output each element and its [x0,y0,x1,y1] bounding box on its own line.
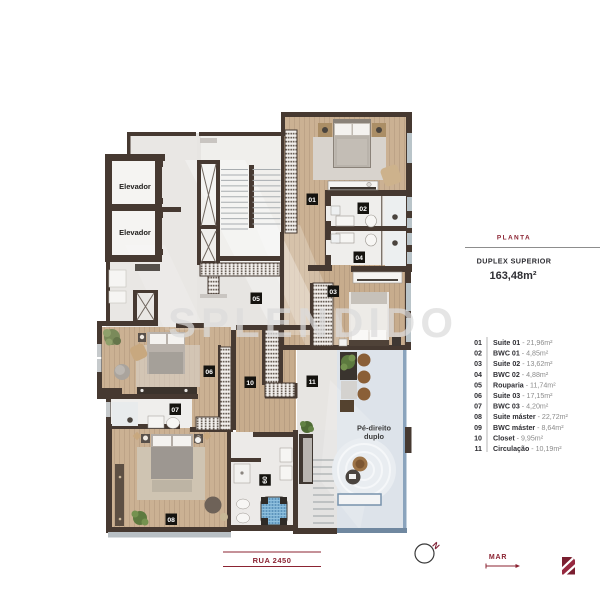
svg-text:N: N [430,540,441,551]
svg-text:BWC 03 - 4,20m²: BWC 03 - 4,20m² [493,403,549,411]
svg-text:08: 08 [474,413,482,421]
svg-text:BWC máster - 8,64m²: BWC máster - 8,64m² [493,424,564,432]
svg-text:Suite máster - 22,72m²: Suite máster - 22,72m² [493,413,569,421]
svg-text:03: 03 [474,360,482,368]
svg-text:06: 06 [474,392,482,400]
svg-text:BWC 02 - 4,88m²: BWC 02 - 4,88m² [493,371,549,379]
svg-text:01: 01 [474,339,482,347]
svg-text:08: 08 [167,517,175,524]
svg-text:Elevador: Elevador [119,182,151,191]
svg-text:Elevador: Elevador [119,228,151,237]
svg-text:PLANTA: PLANTA [497,235,531,242]
svg-text:01: 01 [308,197,316,204]
svg-text:06: 06 [205,369,213,376]
svg-text:05: 05 [474,381,482,389]
svg-text:BWC 01 - 4,85m²: BWC 01 - 4,85m² [493,350,549,358]
svg-text:Circulação - 10,19m²: Circulação - 10,19m² [493,445,562,453]
svg-text:DUPLEX SUPERIOR: DUPLEX SUPERIOR [477,257,552,266]
svg-text:Suite 02 - 13,62m²: Suite 02 - 13,62m² [493,360,553,368]
svg-text:Rouparia - 11,74m²: Rouparia - 11,74m² [493,381,556,389]
svg-text:09: 09 [474,424,482,432]
svg-text:07: 07 [474,403,482,411]
svg-text:SPLENDIDO: SPLENDIDO [168,299,458,346]
svg-text:Suite 01 - 21,96m²: Suite 01 - 21,96m² [493,339,553,347]
svg-text:11: 11 [475,445,483,453]
svg-text:163,48m²: 163,48m² [489,270,536,282]
svg-text:02: 02 [474,350,482,358]
svg-text:11: 11 [309,379,316,386]
svg-text:05: 05 [252,296,260,303]
svg-text:Closet - 9,95m²: Closet - 9,95m² [493,434,544,442]
svg-text:04: 04 [355,255,363,262]
svg-text:MAR: MAR [489,554,507,561]
svg-text:04: 04 [474,371,482,379]
svg-text:02: 02 [359,206,367,213]
svg-text:Suite 03 - 17,15m²: Suite 03 - 17,15m² [493,392,553,400]
svg-text:07: 07 [171,407,179,414]
svg-text:RUA 2450: RUA 2450 [253,556,292,565]
svg-text:09: 09 [261,476,268,484]
svg-text:10: 10 [474,434,482,442]
svg-text:03: 03 [329,289,337,296]
svg-text:duplo: duplo [364,432,385,441]
svg-text:10: 10 [246,380,254,387]
